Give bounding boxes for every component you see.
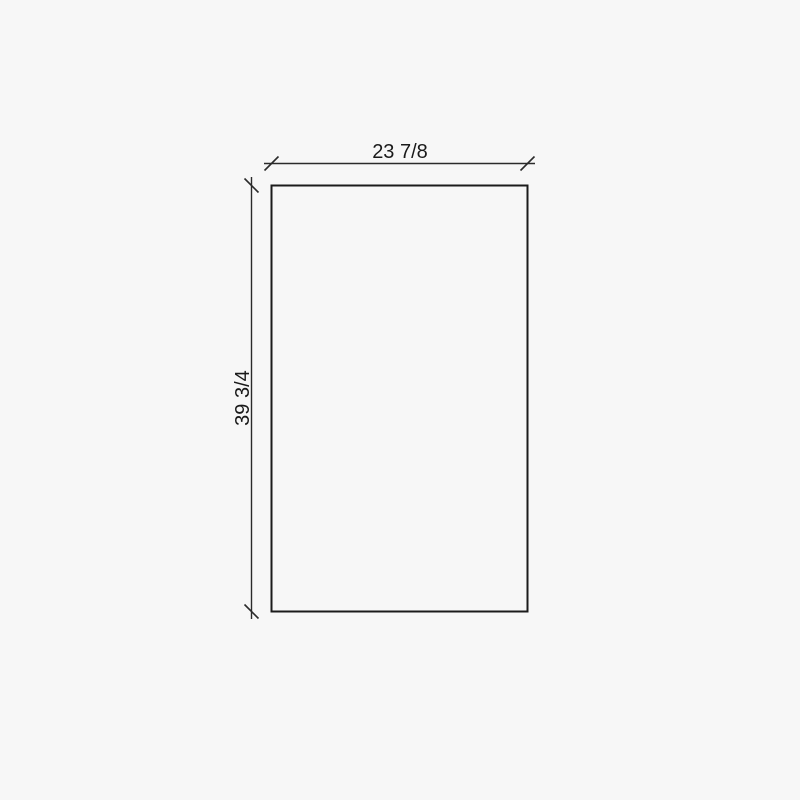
width-dimension-label: 23 7/8 bbox=[372, 141, 428, 163]
panel-outline bbox=[272, 186, 528, 612]
drawing-canvas: 23 7/8 39 3/4 bbox=[0, 0, 800, 800]
height-dimension-label: 39 3/4 bbox=[232, 370, 254, 426]
height-dimension: 39 3/4 bbox=[232, 177, 259, 619]
width-dimension: 23 7/8 bbox=[264, 141, 535, 171]
panel-drawing: 23 7/8 39 3/4 bbox=[0, 0, 800, 800]
